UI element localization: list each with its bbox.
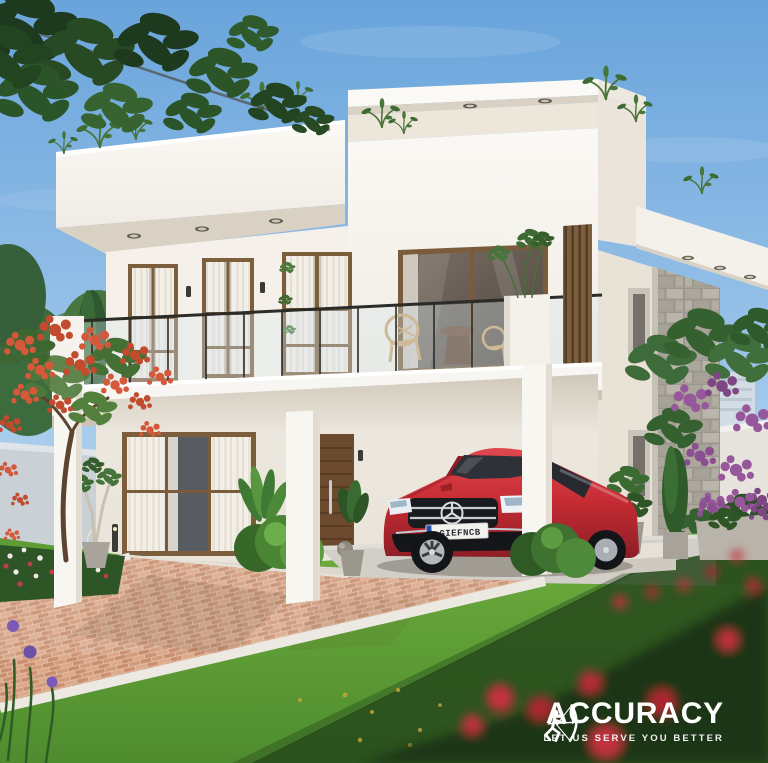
car-wheel-front bbox=[411, 531, 453, 573]
garden-bollard-light bbox=[112, 524, 118, 552]
wood-slat-panel bbox=[563, 224, 592, 382]
car-headlight-left bbox=[388, 498, 412, 515]
potted-conifer bbox=[662, 446, 688, 559]
watermark-logo: ACCURACY LET US SERVE YOU BETTER bbox=[544, 699, 724, 744]
door-handle bbox=[329, 480, 332, 514]
sliding-door-ground bbox=[122, 432, 256, 556]
archer-bow-icon bbox=[544, 700, 581, 746]
architectural-render-image: GIEFNCB bbox=[0, 0, 768, 763]
scene-rendering: GIEFNCB bbox=[0, 0, 768, 763]
porch-column-center bbox=[286, 410, 320, 604]
stone-sphere-highlight bbox=[339, 543, 345, 549]
